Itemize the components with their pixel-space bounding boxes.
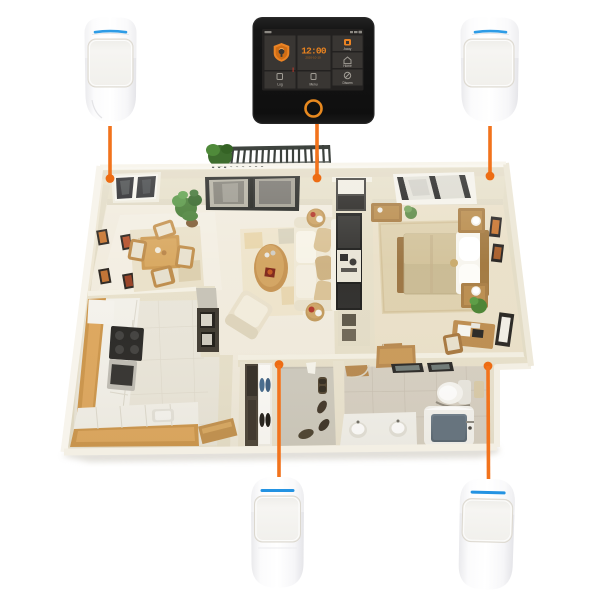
svg-text:Menu: Menu <box>310 83 318 87</box>
svg-text:Log: Log <box>277 83 283 87</box>
svg-text:2020-10-10: 2020-10-10 <box>305 56 321 60</box>
svg-text:Disarm: Disarm <box>342 81 352 85</box>
svg-text:Away: Away <box>344 47 352 51</box>
svg-text:Home: Home <box>343 64 352 68</box>
